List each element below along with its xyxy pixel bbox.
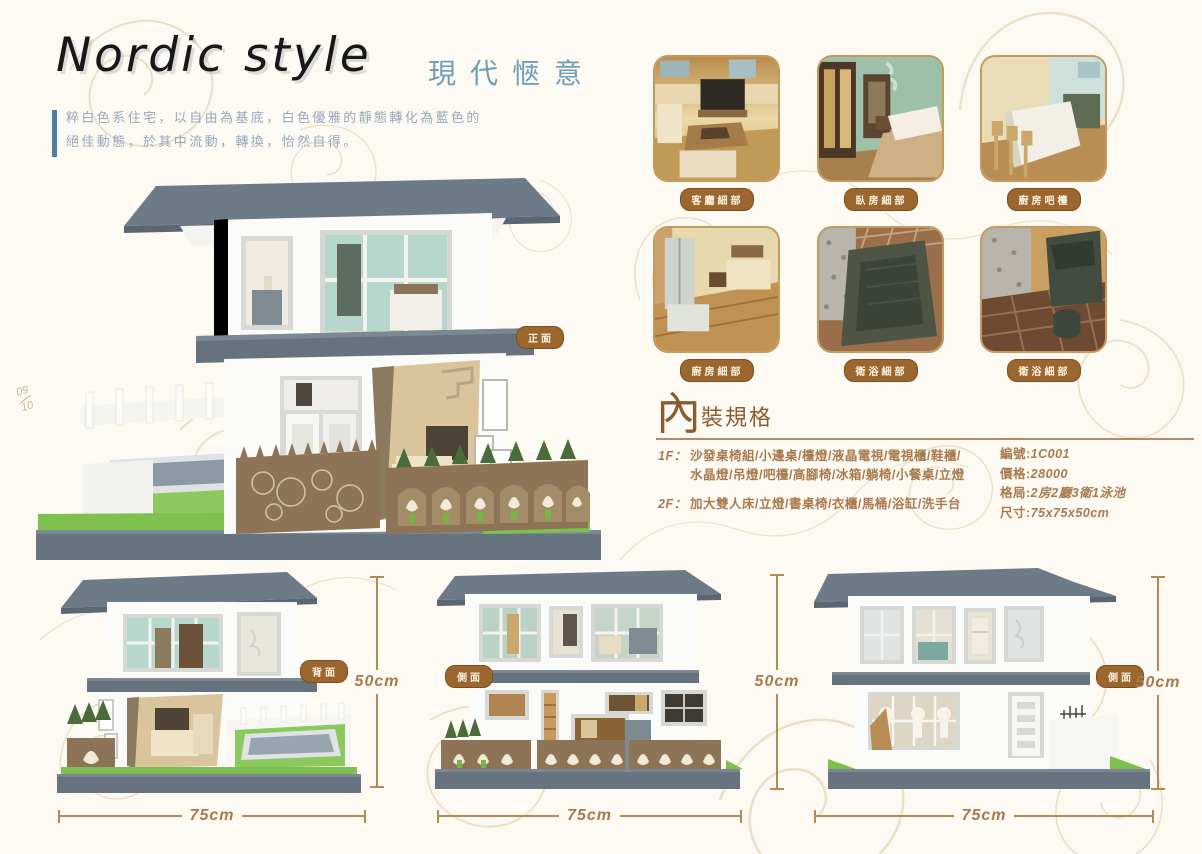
price-label: 價格: — [1000, 467, 1031, 481]
dim-cap — [364, 810, 366, 823]
description-text: 粹白色系住宅，以自由為基底，白色優雅的靜態轉化為藍色的 絕佳動態，於其中流動，轉… — [66, 106, 496, 154]
elevation-side2-height-dimension: 50cm — [1136, 576, 1180, 790]
product-no-value: 1C001 — [1031, 447, 1070, 461]
dim-line — [1157, 578, 1159, 671]
photo-label-bath-1: 衛浴細部 — [817, 359, 944, 382]
floor2-row: 2F： 加大雙人床/立燈/書桌椅/衣櫃/馬桶/浴缸/洗手台 — [658, 495, 993, 514]
photo-bedroom-detail — [817, 55, 944, 182]
spec-product-no: 編號:1C001 — [1000, 445, 1125, 465]
living-room-detail-badge: 客廳細部 — [680, 188, 754, 211]
catalog-page: Nordic style 現代愜意 粹白色系住宅，以自由為基底，白色優雅的靜態轉… — [0, 0, 1202, 854]
elevation-side1-height-dimension: 50cm — [755, 574, 799, 790]
photo-label-kitchen-bar: 廚房吧檯 — [980, 188, 1107, 211]
width-value: 75cm — [190, 807, 235, 825]
description-line-2: 絕佳動態，於其中流動，轉換，怡然自得。 — [66, 134, 359, 149]
dim-line — [776, 694, 778, 788]
rear-view-badge: 背面 — [300, 660, 348, 683]
dim-line — [376, 578, 378, 670]
photo-label-bath-2: 衛浴細部 — [980, 359, 1107, 382]
dim-line — [1157, 695, 1159, 788]
photo-label-kitchen: 廚房細部 — [653, 359, 780, 382]
kitchen-detail-badge: 廚房細部 — [680, 359, 754, 382]
dim-line — [776, 576, 778, 670]
spec-price: 價格:28000 — [1000, 465, 1125, 485]
floor1-label: 1F： — [658, 447, 690, 485]
bathroom-detail-badge-2: 衛浴細部 — [1007, 359, 1081, 382]
size-value: 75x75x50cm — [1031, 506, 1110, 520]
floor1-items-line1: 沙發桌椅組/小邊桌/檯燈/液晶電視/電視櫃/鞋櫃/ — [690, 449, 961, 463]
specs-heading: 內 裝規格 — [656, 394, 773, 434]
dim-cap — [370, 786, 384, 788]
bathroom-vanity-scene — [982, 228, 1105, 351]
main-model-photo-front — [28, 168, 613, 568]
height-value: 50cm — [755, 673, 800, 691]
dim-cap — [1152, 810, 1154, 823]
elevation-side2-width-dimension: 75cm — [814, 804, 1154, 828]
specs-fields: 編號:1C001 價格:28000 格局:2房2廳3衛1泳池 尺寸:75x75x… — [1000, 445, 1125, 523]
floor1-row: 1F： 沙發桌椅組/小邊桌/檯燈/液晶電視/電視櫃/鞋櫃/ 水晶燈/吊燈/吧檯/… — [658, 447, 993, 485]
dim-cap — [1151, 788, 1165, 790]
photo-kitchen-bar — [980, 55, 1107, 182]
elevation-side1-width-dimension: 75cm — [437, 804, 742, 828]
specs-divider-rule — [656, 438, 1194, 440]
height-value: 50cm — [355, 673, 400, 691]
floor2-items: 加大雙人床/立燈/書桌椅/衣櫃/馬桶/浴缸/洗手台 — [690, 495, 961, 514]
height-value: 50cm — [1136, 674, 1181, 692]
width-value: 75cm — [962, 807, 1007, 825]
photo-living-room-detail — [653, 55, 780, 182]
photo-bathroom-detail-2 — [980, 226, 1107, 353]
price-value: 28000 — [1031, 467, 1068, 481]
spec-layout: 格局:2房2廳3衛1泳池 — [1000, 484, 1125, 504]
specs-heading-first-char: 內 — [656, 394, 701, 434]
bedroom-detail-badge: 臥房細部 — [844, 188, 918, 211]
dim-cap — [740, 810, 742, 823]
layout-value: 2房2廳3衛1泳池 — [1031, 486, 1126, 500]
photo-bathroom-detail-1 — [817, 226, 944, 353]
page-subtitle: 現代愜意 — [428, 52, 596, 92]
kitchen-scene — [655, 228, 778, 351]
main-view-label: 正面 — [516, 326, 564, 349]
specs-heading-rest: 裝規格 — [701, 400, 773, 434]
photo-label-living-room: 客廳細部 — [653, 188, 780, 211]
floor1-items: 沙發桌椅組/小邊桌/檯燈/液晶電視/電視櫃/鞋櫃/ 水晶燈/吊燈/吧檯/高腳椅/… — [690, 447, 965, 485]
page-title: Nordic style — [56, 28, 372, 83]
description-line-1: 粹白色系住宅，以自由為基底，白色優雅的靜態轉化為藍色的 — [66, 110, 482, 125]
size-label: 尺寸: — [1000, 506, 1031, 520]
front-view-badge: 正面 — [516, 326, 564, 349]
elevation-side1-label: 側面 — [445, 665, 493, 688]
kitchen-bar-scene — [982, 57, 1105, 180]
elevation-rear-label: 背面 — [300, 660, 348, 683]
photo-kitchen-detail — [653, 226, 780, 353]
dim-line — [620, 815, 740, 817]
floor2-label: 2F： — [658, 495, 690, 514]
dim-line — [60, 815, 182, 817]
bedroom-scene — [819, 57, 942, 180]
layout-label: 格局: — [1000, 486, 1031, 500]
dim-line — [816, 815, 954, 817]
dim-line — [1014, 815, 1152, 817]
living-room-scene — [655, 57, 778, 180]
dim-line — [376, 694, 378, 786]
width-value: 75cm — [567, 807, 612, 825]
specs-floor-lists: 1F： 沙發桌椅組/小邊桌/檯燈/液晶電視/電視櫃/鞋櫃/ 水晶燈/吊燈/吧檯/… — [658, 447, 993, 524]
dim-cap — [770, 788, 784, 790]
elevation-rear-width-dimension: 75cm — [58, 804, 366, 828]
dim-line — [439, 815, 559, 817]
photo-label-bedroom: 臥房細部 — [817, 188, 944, 211]
bathroom-tub-scene — [819, 228, 942, 351]
dim-line — [242, 815, 364, 817]
kitchen-bar-badge: 廚房吧檯 — [1007, 188, 1081, 211]
description-accent-bar — [52, 110, 57, 157]
spec-size: 尺寸:75x75x50cm — [1000, 504, 1125, 524]
product-no-label: 編號: — [1000, 447, 1031, 461]
side-view-badge-1: 側面 — [445, 665, 493, 688]
bathroom-detail-badge-1: 衛浴細部 — [844, 359, 918, 382]
floor1-items-line2: 水晶燈/吊燈/吧檯/高腳椅/冰箱/躺椅/小餐桌/立燈 — [690, 468, 965, 482]
elevation-rear-height-dimension: 50cm — [355, 576, 399, 788]
